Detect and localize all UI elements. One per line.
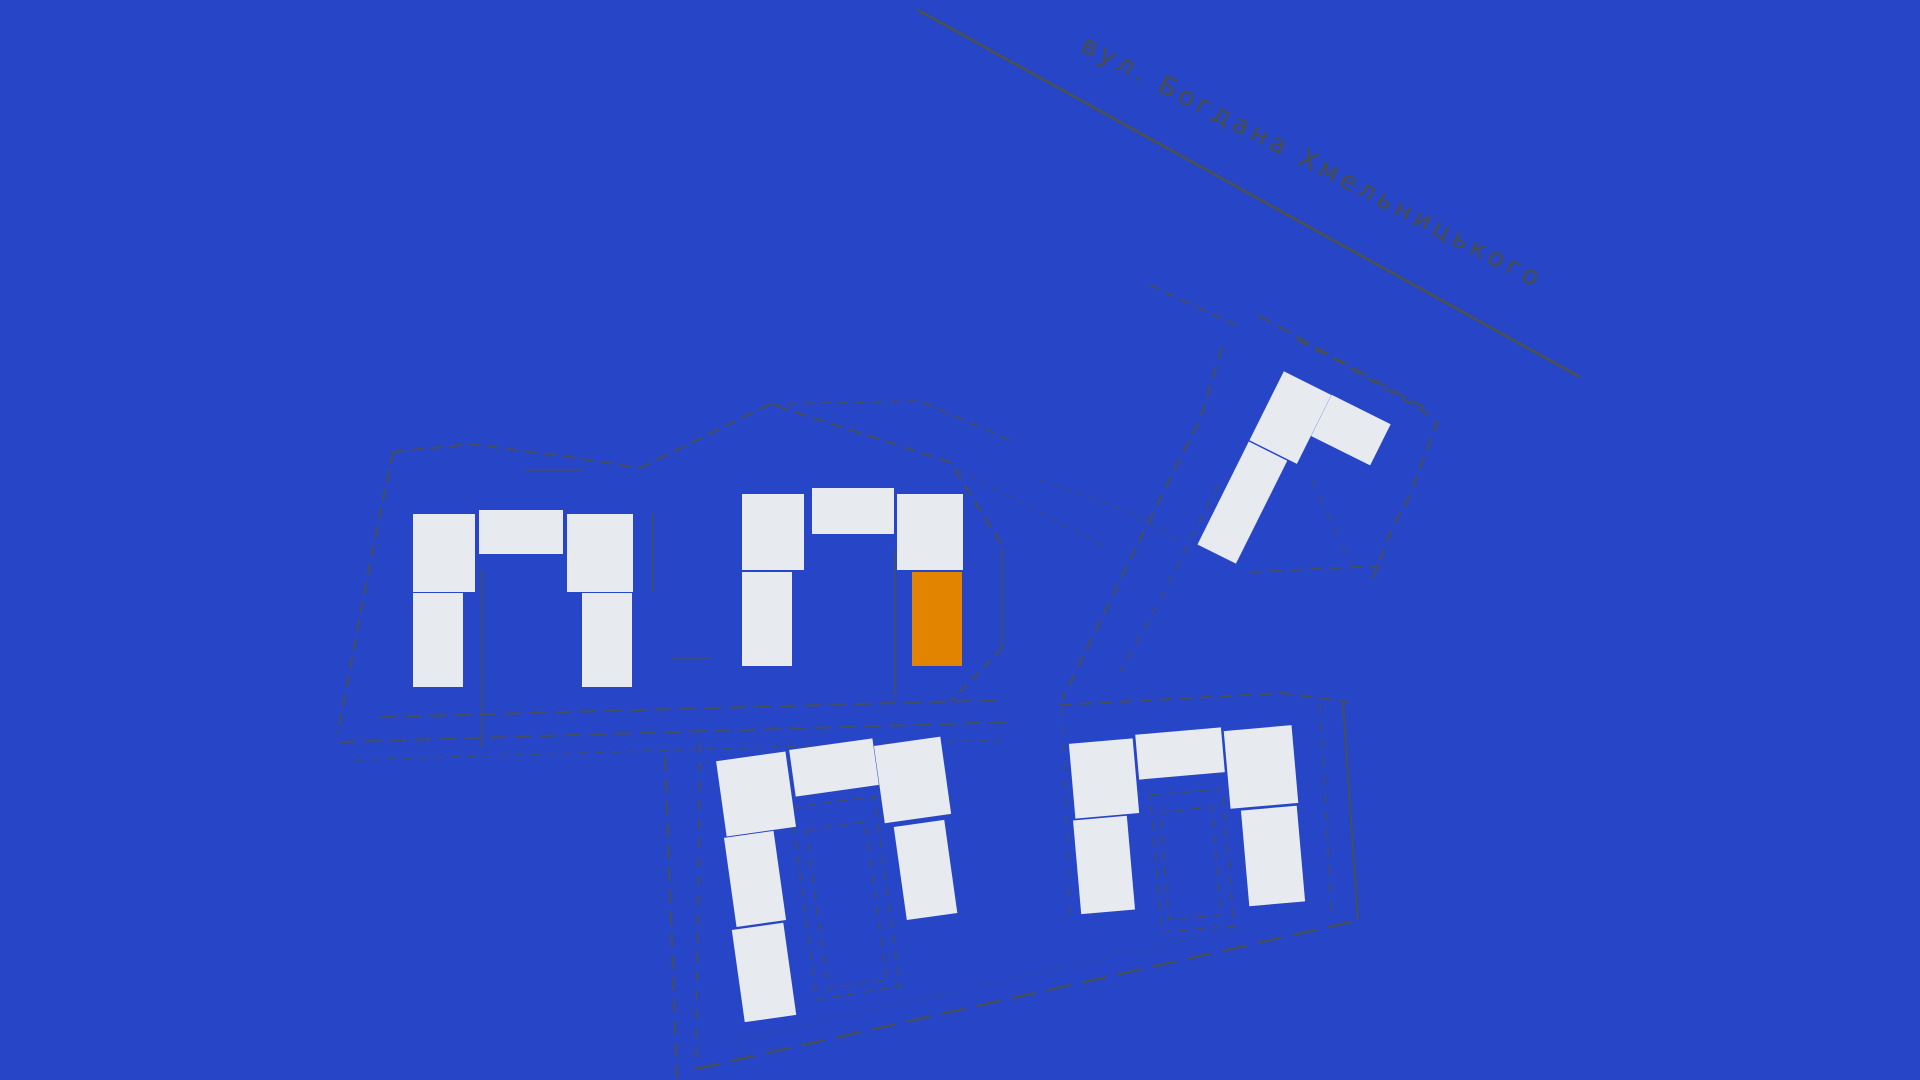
building-section[interactable] [812,488,895,535]
building-section[interactable] [732,923,796,1022]
building-section[interactable] [724,831,785,927]
building-section[interactable] [897,494,963,570]
building-section[interactable] [1069,738,1139,818]
building-section-highlighted[interactable] [912,572,963,667]
building-section[interactable] [1241,806,1305,906]
building-section[interactable] [1224,725,1298,808]
building-section[interactable] [874,737,951,823]
building-section[interactable] [582,593,633,687]
building-section[interactable] [742,494,804,571]
building-section[interactable] [1197,441,1286,562]
building-section[interactable] [789,738,878,796]
building-section[interactable] [567,514,633,592]
building-section[interactable] [893,820,956,920]
building-section[interactable] [1073,816,1134,914]
building-section[interactable] [716,752,795,836]
site-plan-map: вул. Богдана Хмельницького [0,0,1920,1080]
building-section[interactable] [742,572,792,667]
building-section[interactable] [413,593,463,687]
buildings-layer [0,0,1920,1080]
building-section[interactable] [413,514,476,592]
building-section[interactable] [479,510,563,555]
building-section[interactable] [1135,727,1224,779]
